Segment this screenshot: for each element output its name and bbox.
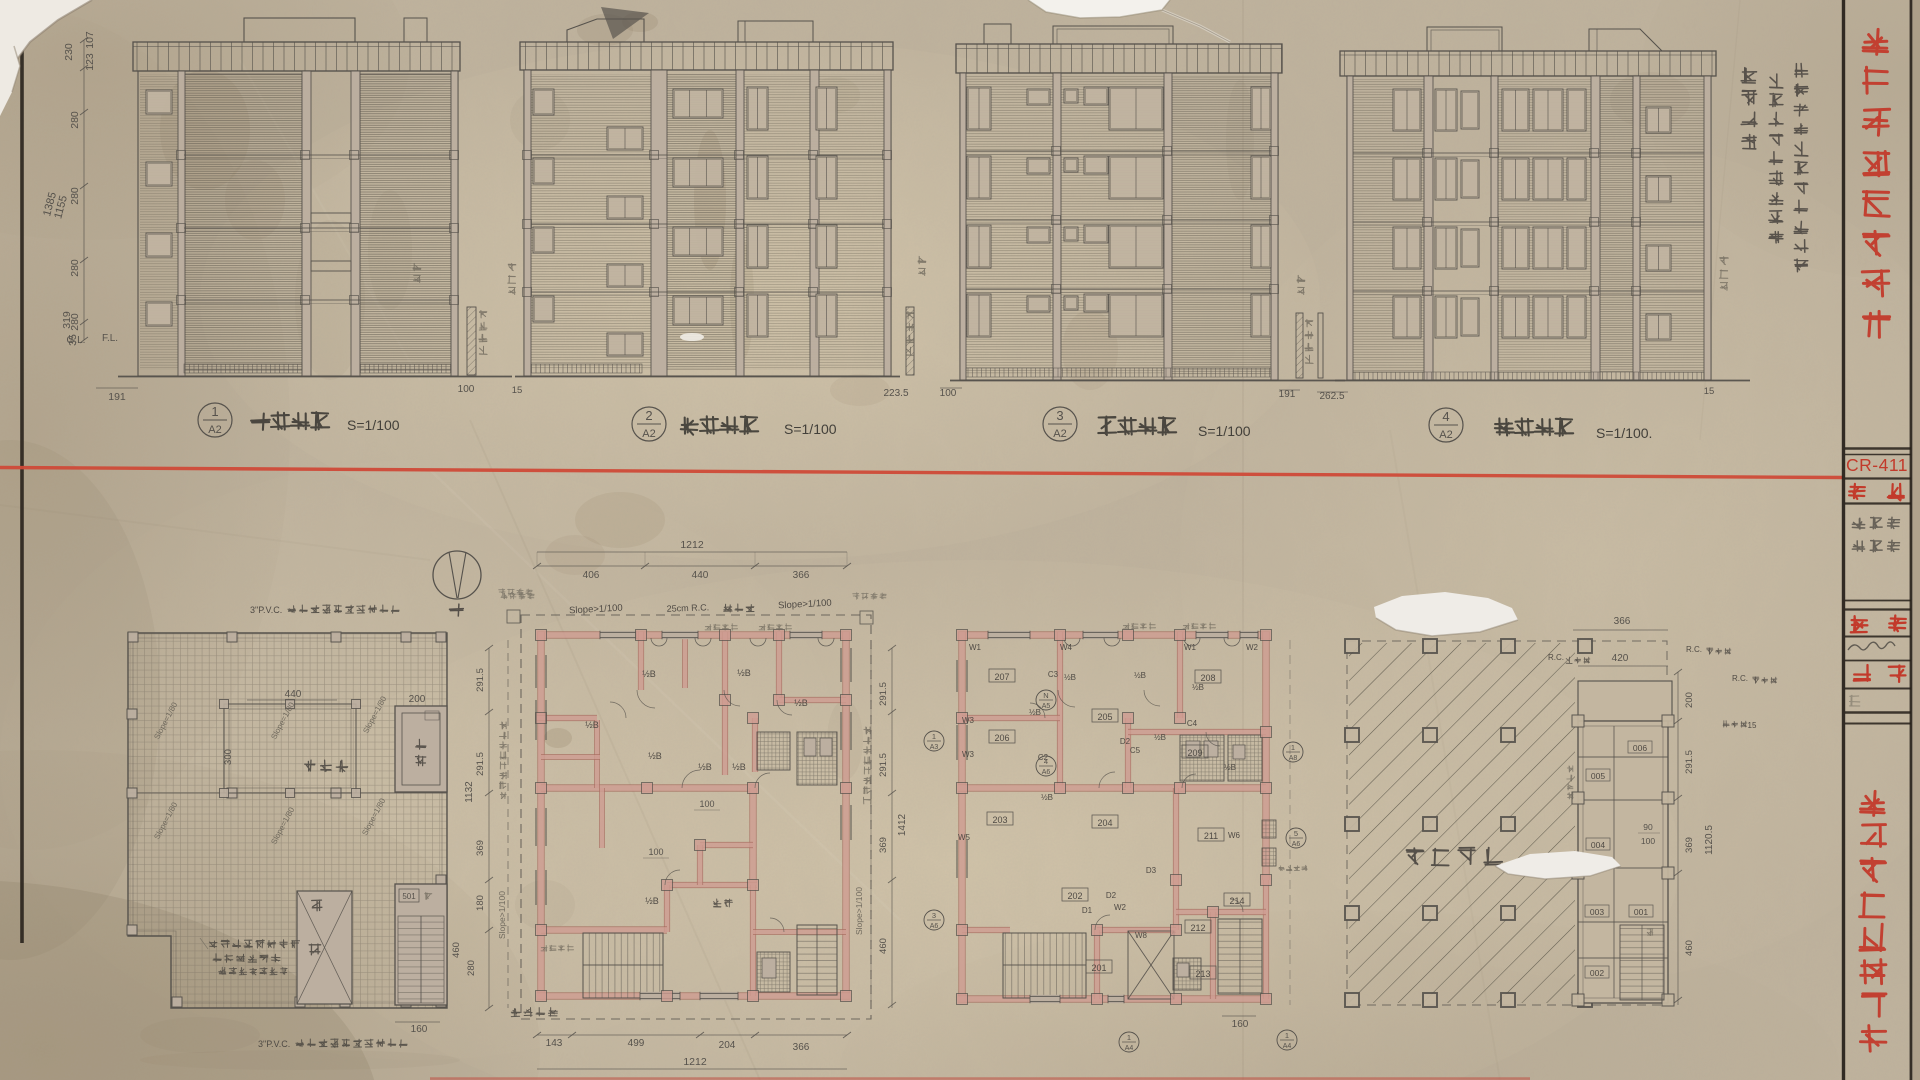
svg-text:2: 2 [645, 408, 652, 423]
svg-text:3"P.V.C.: 3"P.V.C. [258, 1039, 290, 1049]
svg-text:½B: ½B [1064, 673, 1076, 682]
svg-text:Slope>1/100: Slope>1/100 [497, 891, 507, 939]
svg-text:R.C.: R.C. [1548, 653, 1564, 662]
svg-text:369: 369 [878, 837, 889, 853]
svg-text:300: 300 [223, 749, 234, 765]
svg-text:203: 203 [992, 815, 1007, 825]
svg-text:369: 369 [1684, 837, 1695, 853]
svg-text:A6: A6 [1042, 769, 1051, 776]
svg-text:006: 006 [1633, 743, 1647, 753]
svg-text:½B: ½B [1041, 793, 1053, 802]
svg-text:366: 366 [793, 570, 810, 581]
svg-text:004: 004 [1591, 840, 1605, 850]
svg-text:143: 143 [546, 1038, 563, 1049]
svg-text:406: 406 [583, 570, 600, 581]
svg-text:366: 366 [793, 1042, 810, 1053]
svg-text:½B: ½B [698, 762, 712, 772]
svg-text:A6: A6 [1292, 841, 1301, 848]
svg-text:S=1/100.: S=1/100. [1596, 425, 1652, 441]
svg-text:200: 200 [1684, 692, 1695, 708]
svg-text:½B: ½B [642, 669, 656, 679]
svg-text:D2: D2 [1106, 891, 1117, 900]
svg-text:3: 3 [1056, 408, 1063, 423]
svg-text:100: 100 [699, 799, 714, 809]
svg-text:005: 005 [1591, 771, 1605, 781]
svg-text:½B: ½B [1154, 733, 1166, 742]
svg-text:214: 214 [1229, 896, 1244, 906]
svg-text:460: 460 [878, 938, 889, 954]
svg-text:262.5: 262.5 [1319, 391, 1344, 402]
svg-text:CR-411: CR-411 [1846, 455, 1908, 475]
svg-text:W1: W1 [1184, 643, 1197, 652]
svg-text:291.5: 291.5 [1684, 750, 1695, 774]
svg-text:160: 160 [411, 1024, 428, 1035]
svg-text:A2: A2 [1439, 429, 1452, 441]
svg-text:420: 420 [1612, 653, 1629, 664]
svg-text:C4: C4 [1187, 719, 1198, 728]
svg-text:A2: A2 [642, 428, 655, 440]
svg-text:200: 200 [409, 694, 426, 705]
svg-text:223.5: 223.5 [883, 388, 908, 399]
svg-text:S=1/100: S=1/100 [784, 421, 837, 437]
svg-text:1212: 1212 [680, 539, 704, 551]
svg-text:W8: W8 [1135, 931, 1148, 940]
svg-text:100: 100 [458, 384, 475, 395]
svg-text:280: 280 [466, 960, 477, 976]
svg-text:3"P.V.C.: 3"P.V.C. [250, 605, 282, 615]
svg-text:1: 1 [1285, 1031, 1289, 1040]
svg-text:001: 001 [1634, 907, 1648, 917]
svg-text:R.C.: R.C. [1732, 674, 1748, 683]
svg-text:003: 003 [1590, 907, 1604, 917]
svg-text:D3: D3 [1146, 866, 1157, 875]
svg-text:202: 202 [1067, 891, 1082, 901]
svg-text:291.5: 291.5 [878, 682, 889, 706]
svg-text:90: 90 [1643, 822, 1653, 832]
svg-text:100: 100 [1641, 836, 1655, 846]
svg-text:W3: W3 [962, 750, 975, 759]
svg-text:½B: ½B [732, 762, 746, 772]
svg-text:1: 1 [1127, 1033, 1131, 1042]
svg-text:A4: A4 [1283, 1043, 1292, 1050]
svg-text:W2: W2 [1114, 903, 1127, 912]
svg-text:3: 3 [932, 911, 936, 920]
svg-text:211: 211 [1204, 831, 1218, 841]
svg-text:A6: A6 [930, 923, 939, 930]
svg-text:1: 1 [211, 404, 218, 419]
svg-text:291.5: 291.5 [878, 753, 889, 777]
svg-text:280: 280 [69, 259, 81, 277]
svg-text:15: 15 [1748, 721, 1757, 730]
svg-text:S=1/100: S=1/100 [347, 417, 400, 433]
svg-text:1: 1 [932, 732, 936, 741]
svg-text:291.5: 291.5 [475, 668, 486, 692]
svg-text:440: 440 [285, 689, 302, 700]
svg-text:1212: 1212 [683, 1056, 707, 1068]
svg-text:160: 160 [1232, 1019, 1249, 1030]
svg-text:204: 204 [719, 1040, 736, 1051]
svg-text:½B: ½B [648, 751, 662, 761]
svg-text:C3: C3 [1048, 670, 1059, 679]
svg-text:25cm R.C.: 25cm R.C. [666, 602, 709, 613]
svg-text:204: 204 [1097, 818, 1112, 828]
svg-text:123: 123 [84, 53, 96, 71]
svg-text:½B: ½B [645, 896, 659, 906]
svg-text:C5: C5 [1130, 746, 1141, 755]
svg-text:291.5: 291.5 [475, 752, 486, 776]
svg-text:280: 280 [69, 187, 81, 205]
svg-text:366: 366 [1614, 616, 1631, 627]
svg-text:460: 460 [451, 942, 462, 958]
svg-text:201: 201 [1091, 963, 1106, 973]
svg-text:1120.5: 1120.5 [1704, 825, 1715, 855]
svg-text:191: 191 [108, 391, 126, 403]
svg-text:35: 35 [67, 334, 79, 346]
svg-text:15: 15 [512, 385, 523, 396]
svg-text:D2: D2 [1120, 737, 1131, 746]
svg-text:½B: ½B [1134, 671, 1146, 680]
svg-text:501: 501 [402, 892, 416, 901]
svg-text:½B: ½B [585, 720, 599, 730]
svg-text:D1: D1 [1082, 906, 1093, 915]
svg-text:1: 1 [1291, 743, 1295, 752]
svg-text:499: 499 [628, 1038, 645, 1049]
svg-text:206: 206 [994, 733, 1009, 743]
svg-text:440: 440 [692, 570, 709, 581]
svg-text:180: 180 [475, 895, 486, 911]
svg-text:4: 4 [1044, 757, 1048, 766]
svg-text:209: 209 [1187, 748, 1202, 758]
svg-text:4: 4 [1442, 409, 1449, 424]
svg-text:460: 460 [1684, 940, 1695, 956]
svg-text:F.L.: F.L. [102, 333, 118, 344]
svg-text:205: 205 [1097, 712, 1112, 722]
svg-text:207: 207 [994, 672, 1009, 682]
svg-text:½B: ½B [794, 698, 808, 708]
svg-text:Slope>1/100: Slope>1/100 [854, 887, 864, 935]
svg-text:191: 191 [1279, 389, 1296, 400]
svg-text:107: 107 [84, 31, 96, 49]
svg-text:1132: 1132 [464, 781, 475, 803]
svg-text:S=1/100: S=1/100 [1198, 423, 1251, 439]
svg-text:100: 100 [648, 847, 663, 857]
svg-text:280: 280 [69, 111, 81, 129]
svg-text:5: 5 [1294, 829, 1298, 838]
svg-text:R.C.: R.C. [1686, 645, 1702, 654]
svg-text:½B: ½B [1192, 683, 1204, 692]
svg-text:W2: W2 [1246, 643, 1259, 652]
svg-text:½B: ½B [737, 668, 751, 678]
svg-text:A4: A4 [1125, 1045, 1134, 1052]
svg-text:N: N [1043, 691, 1048, 700]
svg-text:W3: W3 [962, 716, 975, 725]
svg-text:½B: ½B [1029, 708, 1041, 717]
svg-text:W4: W4 [1060, 643, 1073, 652]
svg-text:W1: W1 [969, 643, 982, 652]
svg-text:213: 213 [1195, 969, 1210, 979]
svg-text:A5: A5 [1042, 703, 1051, 710]
svg-text:230: 230 [63, 43, 75, 61]
svg-text:A2: A2 [1053, 428, 1066, 440]
svg-text:W6: W6 [1228, 831, 1241, 840]
svg-text:A3: A3 [930, 744, 939, 751]
svg-text:100: 100 [940, 388, 957, 399]
svg-text:319: 319 [61, 311, 73, 329]
svg-text:208: 208 [1200, 673, 1215, 683]
svg-text:A2: A2 [208, 424, 221, 436]
svg-text:15: 15 [1704, 386, 1715, 397]
svg-text:369: 369 [475, 840, 486, 856]
svg-text:W5: W5 [958, 833, 971, 842]
svg-text:1412: 1412 [897, 813, 908, 836]
svg-text:212: 212 [1190, 923, 1205, 933]
svg-text:002: 002 [1590, 968, 1604, 978]
svg-text:½B: ½B [1224, 763, 1236, 772]
